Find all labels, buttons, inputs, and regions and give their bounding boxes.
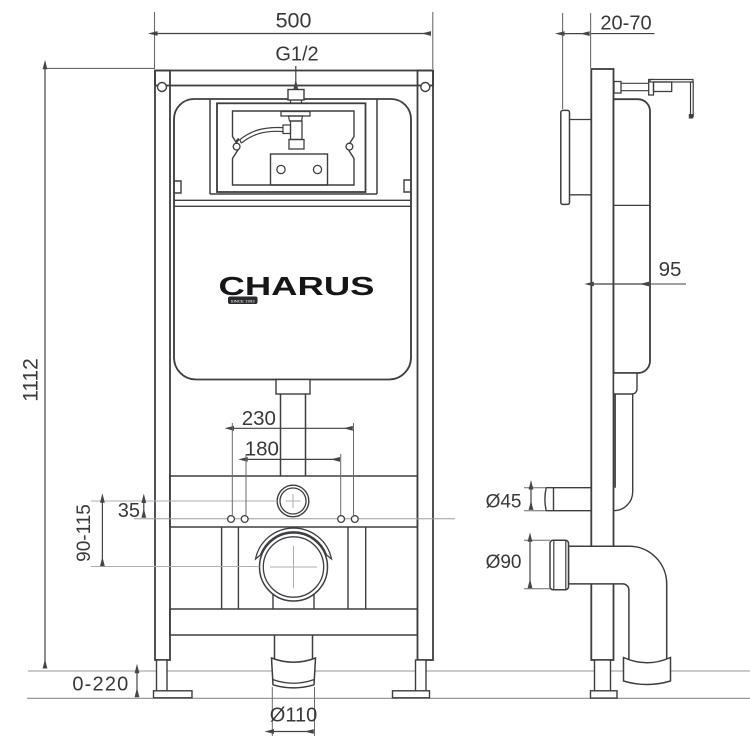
svg-text:G1/2: G1/2 xyxy=(275,44,318,66)
svg-text:Ø90: Ø90 xyxy=(486,552,522,573)
svg-text:500: 500 xyxy=(276,9,312,33)
svg-text:Ø45: Ø45 xyxy=(486,492,522,513)
svg-text:Ø110: Ø110 xyxy=(270,705,317,727)
svg-text:35: 35 xyxy=(118,500,140,522)
svg-text:0-220: 0-220 xyxy=(72,674,129,696)
svg-text:95: 95 xyxy=(659,258,682,281)
svg-text:1112: 1112 xyxy=(20,358,43,402)
svg-text:20-70: 20-70 xyxy=(600,13,651,35)
svg-text:90-115: 90-115 xyxy=(74,504,95,562)
svg-text:230: 230 xyxy=(242,407,276,430)
svg-text:180: 180 xyxy=(245,438,279,461)
svg-text:SINCE 1993: SINCE 1993 xyxy=(231,298,256,303)
